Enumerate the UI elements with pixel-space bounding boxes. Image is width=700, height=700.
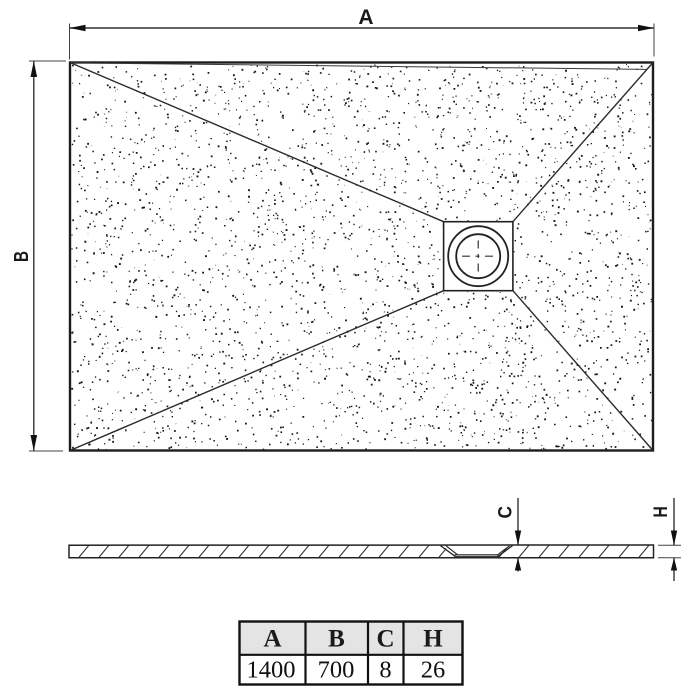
svg-text:A: A: [358, 6, 373, 29]
svg-text:A: A: [263, 626, 281, 653]
svg-text:8: 8: [379, 657, 391, 684]
svg-text:B: B: [11, 251, 33, 262]
svg-text:1400: 1400: [247, 657, 296, 684]
svg-text:H: H: [651, 506, 672, 518]
svg-text:700: 700: [318, 657, 355, 684]
svg-text:C: C: [496, 506, 517, 519]
svg-text:C: C: [376, 626, 394, 653]
svg-text:H: H: [423, 626, 443, 653]
svg-text:B: B: [328, 626, 345, 653]
svg-text:26: 26: [421, 657, 446, 684]
